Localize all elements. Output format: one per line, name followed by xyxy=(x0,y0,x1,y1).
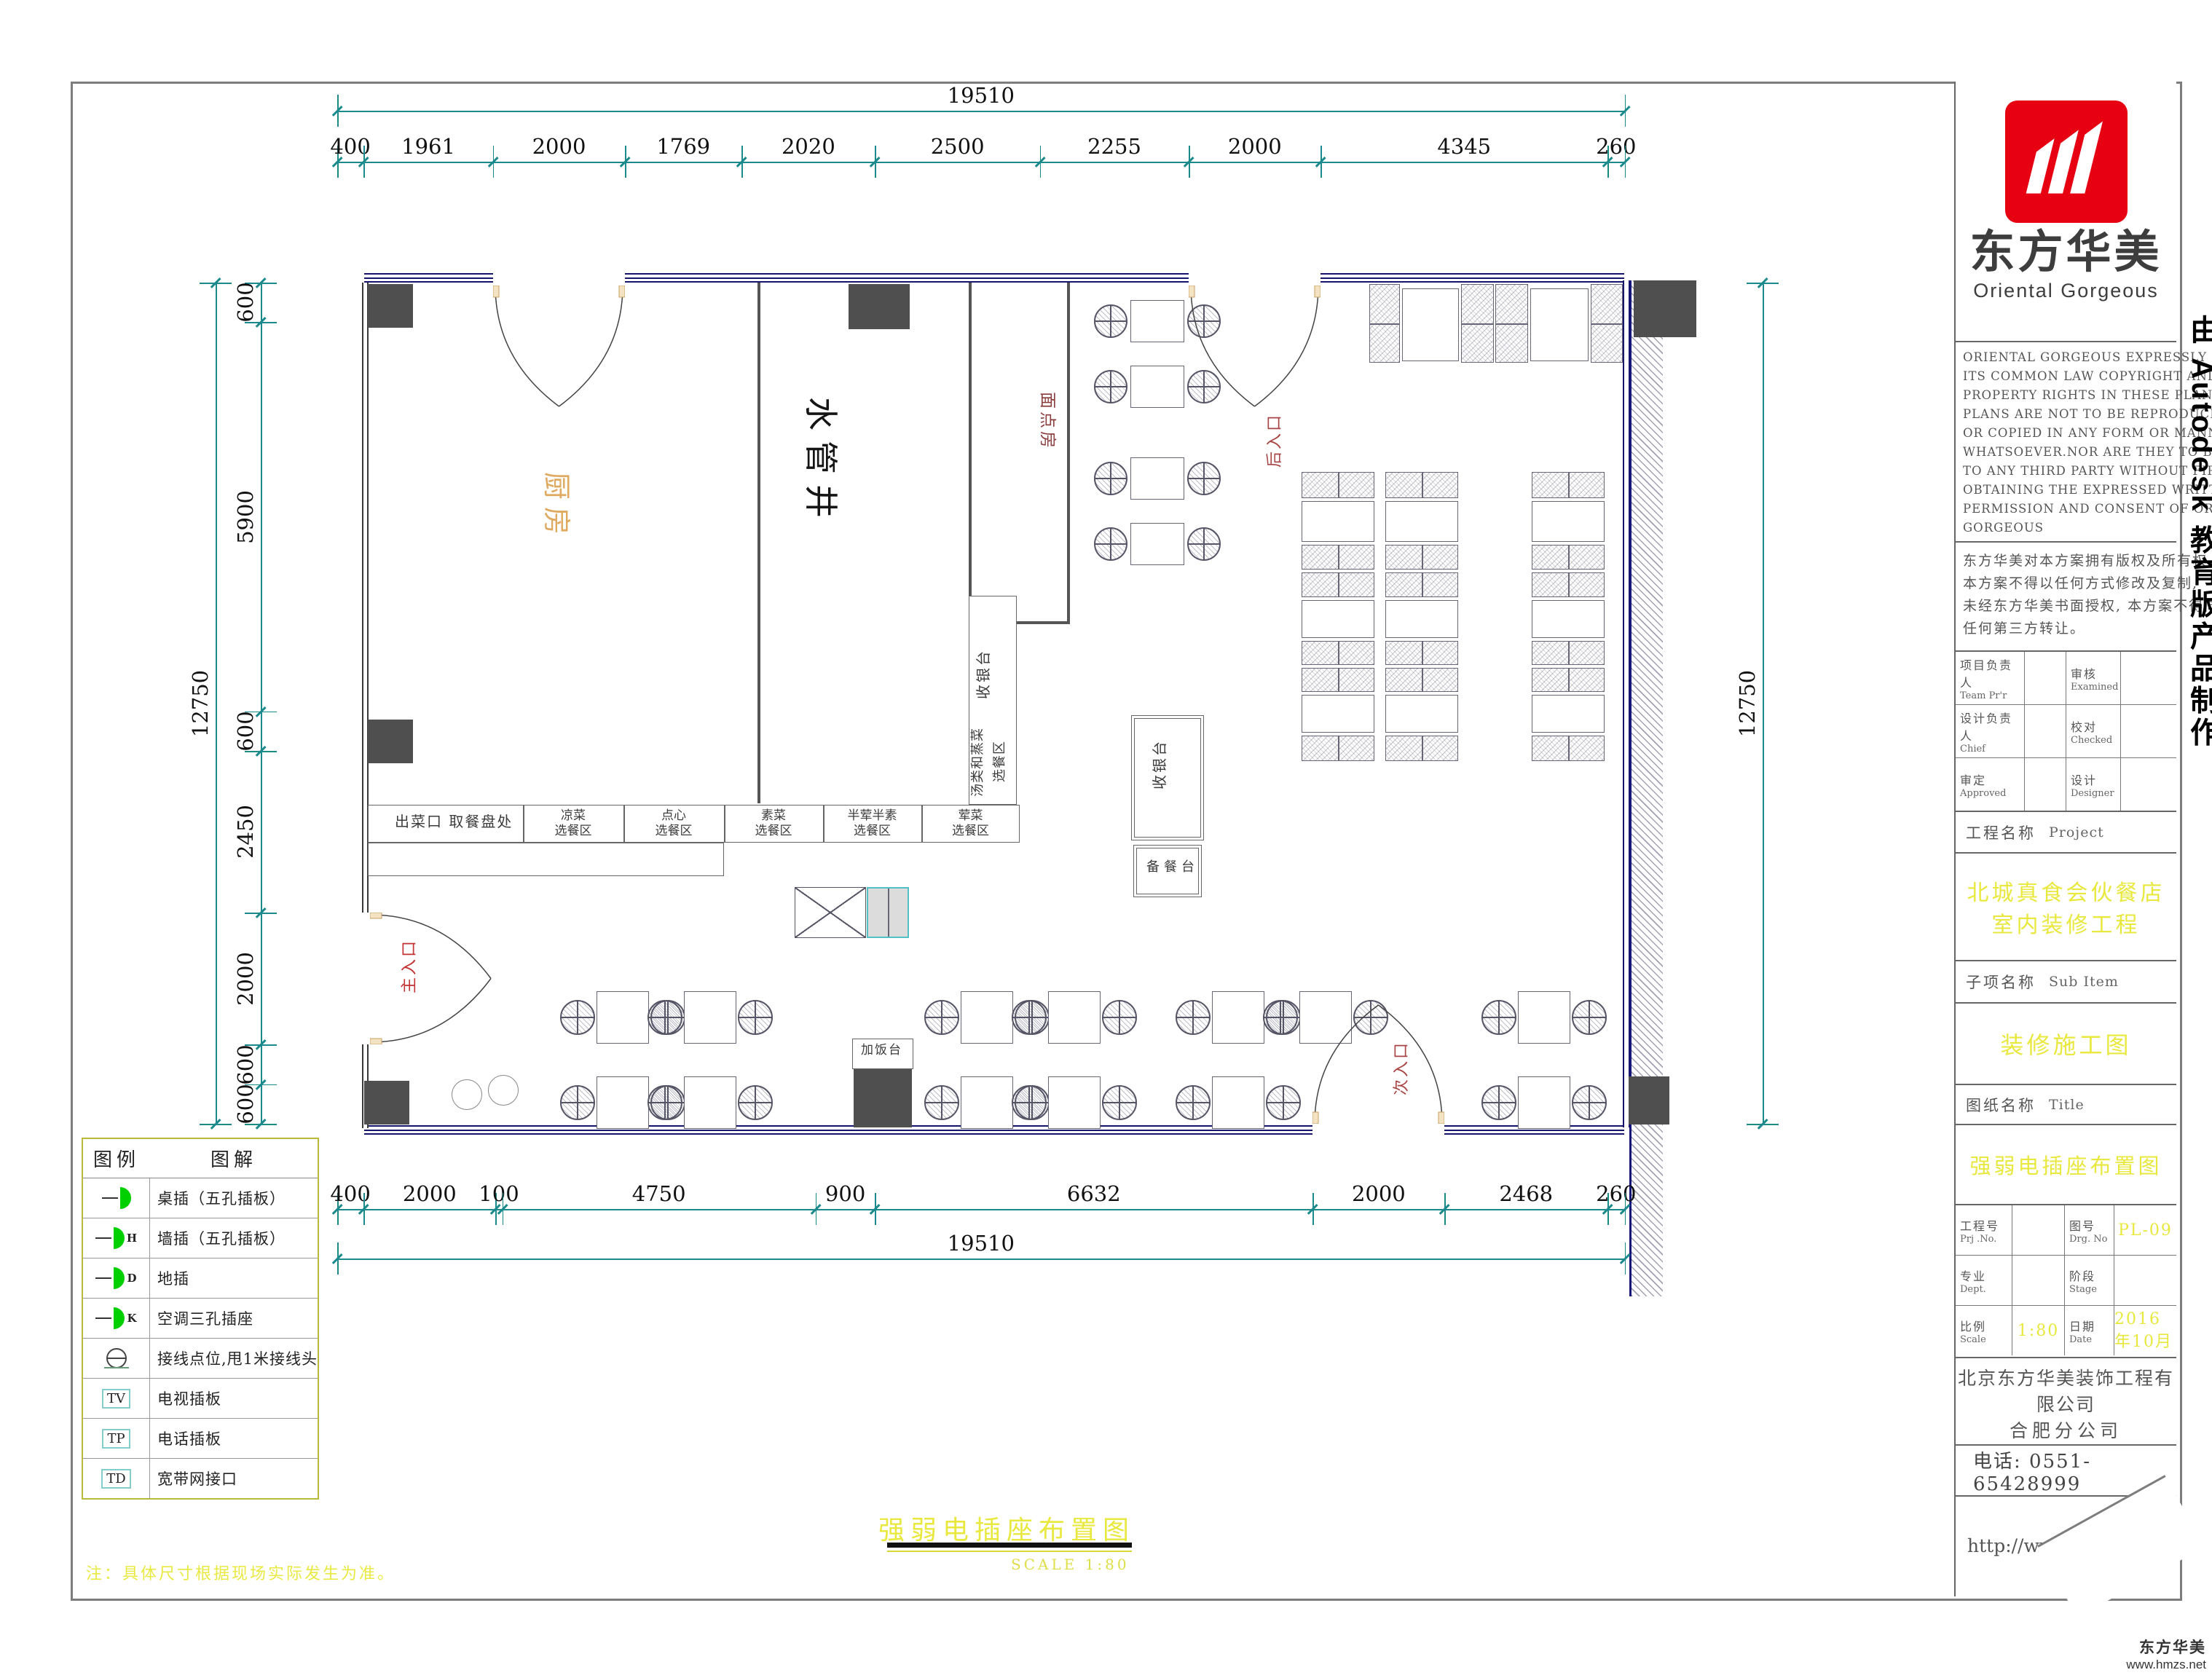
booth-table xyxy=(1402,288,1459,361)
bench-divider xyxy=(1422,473,1423,497)
zone-line2: 选餐区 xyxy=(854,824,891,839)
dim-label: 2500 xyxy=(931,134,985,159)
copyright-line: OBTAINING THE EXPRESSED WRITTEN xyxy=(1963,481,2176,500)
field-value: 2016年10月 xyxy=(2114,1306,2176,1355)
booth-table xyxy=(1532,600,1605,638)
dim-witness xyxy=(1312,1193,1314,1225)
structural-column xyxy=(849,284,910,329)
dim-label: 2255 xyxy=(1087,134,1141,159)
field-label-cn: 工程号 xyxy=(1960,1216,2012,1234)
dim-label-total: 19510 xyxy=(948,83,1015,108)
room-label: 加饭台 xyxy=(861,1044,902,1057)
dim-label: 600 xyxy=(233,1084,258,1124)
socket-icon xyxy=(83,1178,150,1218)
subitem-label-cn: 子项名称 xyxy=(1966,971,2036,993)
dining-table xyxy=(1048,1076,1101,1129)
exterior-wall-top xyxy=(1320,273,1624,283)
dining-table xyxy=(961,1076,1013,1129)
plain-chair xyxy=(488,1075,519,1106)
bench-divider xyxy=(1422,573,1423,596)
field-label-en: Examined xyxy=(2071,682,2120,693)
outlet-box-icon: TD xyxy=(83,1459,150,1498)
bench-divider xyxy=(1462,323,1493,325)
plain-chair xyxy=(452,1079,482,1110)
dim-witness xyxy=(1625,95,1626,127)
dim-witness xyxy=(1320,146,1322,178)
field-label-cn: 审定 xyxy=(1960,771,2024,788)
room-label: 主入口 xyxy=(402,939,418,993)
cabinet-divider xyxy=(888,889,889,937)
dining-table xyxy=(1130,366,1184,408)
sheet-label-row: 图纸名称 Title xyxy=(1956,1085,2176,1125)
dim-line-total xyxy=(337,1258,1625,1260)
booth-table xyxy=(1385,600,1458,638)
room-label: 汤类和蒸菜 xyxy=(972,728,985,797)
field-label-cn: 阶段 xyxy=(2069,1267,2114,1284)
serving-zone-label: 凉菜选餐区 xyxy=(523,805,623,842)
legend-row: TP电话插板 xyxy=(83,1419,318,1459)
legend-label: 电话插板 xyxy=(150,1427,318,1449)
autodesk-edu-note: 由 Autodesk 教育版产品制作 xyxy=(2181,315,2212,749)
dim-witness xyxy=(363,146,365,178)
bench-divider xyxy=(1568,669,1570,691)
room-label: 收银台 xyxy=(976,649,991,699)
booth-bench xyxy=(1532,736,1605,761)
dim-label: 6632 xyxy=(1067,1181,1121,1206)
meta-row: 比例Scale1:80日期Date2016年10月 xyxy=(1956,1306,2176,1355)
zone-line1: 点心 xyxy=(661,808,686,824)
dining-chair xyxy=(648,1000,682,1035)
dim-label: 2000 xyxy=(233,952,258,1006)
dining-chair xyxy=(738,1085,773,1120)
dim-line xyxy=(337,1209,1625,1210)
legend-label: 桌插（五孔插板） xyxy=(150,1187,318,1209)
field-label-en: Scale xyxy=(1960,1334,2012,1345)
zone-line2: 选餐区 xyxy=(952,824,989,839)
booth-bench xyxy=(1302,545,1374,570)
dim-witness xyxy=(503,1193,504,1225)
dining-chair xyxy=(1263,1000,1298,1035)
serving-counter-lower xyxy=(368,843,724,876)
watermark-chinese: 东方华美 xyxy=(2126,1636,2206,1658)
field-label-en: Stage xyxy=(2069,1284,2114,1295)
dim-line xyxy=(261,283,262,1124)
field-label: 设计负责人Chief xyxy=(1956,705,2025,757)
field-value xyxy=(2114,1256,2176,1305)
dining-table xyxy=(1048,991,1101,1044)
field-label: 校对Checked xyxy=(2066,705,2121,757)
dining-chair xyxy=(1481,1085,1516,1120)
field-label: 阶段Stage xyxy=(2065,1256,2114,1305)
booth-table xyxy=(1302,600,1374,638)
booth-table xyxy=(1302,501,1374,542)
dim-witness xyxy=(816,1193,817,1225)
sheet-name: 强弱电插座布置图 xyxy=(1956,1125,2176,1205)
booth-bench xyxy=(1385,545,1458,570)
dim-line-total xyxy=(337,111,1625,112)
socket-lead-icon xyxy=(95,1317,111,1319)
footnote: 注：具体尺寸根据现场实际发生为准。 xyxy=(86,1561,395,1584)
booth-bench xyxy=(1302,641,1374,665)
socket-icon: H xyxy=(83,1218,150,1258)
booth-table xyxy=(1532,501,1605,542)
copyright-line: ITS COMMON LAW COPYRIGHT AND OTHER xyxy=(1963,367,2176,386)
dim-label: 600 xyxy=(233,1044,258,1084)
legend-row: 接线点位,甩1米接线头 xyxy=(83,1339,318,1379)
dim-label-total: 12750 xyxy=(188,669,213,736)
interior-wall xyxy=(757,283,760,803)
copyright-cn-line: 本方案不得以任何方式修改及复制, xyxy=(1963,572,2176,595)
dim-label-total: 12750 xyxy=(1735,669,1760,736)
equipment-xbox xyxy=(795,887,866,938)
copyright-line: OR COPIED IN ANY FORM OR MANNER xyxy=(1963,424,2176,443)
room-label: 备餐台 xyxy=(1146,861,1199,874)
dim-label: 2000 xyxy=(403,1181,457,1206)
legend-table: 图例 图解 桌插（五孔插板）H墙插（五孔插板）D地插K空调三孔插座接线点位,甩1… xyxy=(82,1138,319,1500)
dining-chair xyxy=(1102,1085,1137,1120)
equipment-cabinet xyxy=(867,887,909,938)
bench-divider xyxy=(1338,669,1339,691)
field-value xyxy=(2121,652,2176,704)
exterior-wall-bottom xyxy=(364,1125,1312,1135)
bench-divider xyxy=(1496,323,1527,325)
dining-chair xyxy=(648,1085,682,1120)
dim-line xyxy=(337,162,1625,163)
dining-chair xyxy=(1012,1000,1047,1035)
dim-label: 600 xyxy=(233,282,258,322)
zone-line2: 选餐区 xyxy=(555,824,592,839)
dining-table xyxy=(1130,300,1184,342)
legend-label: 墙插（五孔插板） xyxy=(150,1227,318,1249)
booth-bench xyxy=(1495,284,1528,363)
field-value xyxy=(2025,705,2066,757)
legend-rows: 桌插（五孔插板）H墙插（五孔插板）D地插K空调三孔插座接线点位,甩1米接线头TV… xyxy=(83,1178,318,1498)
dim-witness xyxy=(1625,146,1626,178)
outlet-box-label: TP xyxy=(102,1429,130,1449)
dim-label: 1769 xyxy=(656,134,710,159)
wall-hatch-strip xyxy=(1629,280,1663,1296)
dim-line-total xyxy=(216,283,217,1124)
booth-bench xyxy=(1302,736,1374,761)
dining-table xyxy=(684,1076,736,1129)
dim-label: 2450 xyxy=(233,805,258,859)
bench-divider xyxy=(1338,573,1339,596)
socket-lead-icon xyxy=(95,1237,111,1239)
project-name-line: 室内装修工程 xyxy=(1992,907,2141,939)
dining-chair xyxy=(1176,1085,1211,1120)
subitem-name: 装修施工图 xyxy=(1956,1004,2176,1085)
dining-chair xyxy=(738,1000,773,1035)
dining-chair xyxy=(1012,1085,1047,1120)
socket-body-icon xyxy=(114,1227,125,1249)
dim-label: 1961 xyxy=(401,134,455,159)
dining-chair xyxy=(1572,1085,1607,1120)
bench-divider xyxy=(1591,323,1622,325)
dim-witness xyxy=(875,146,876,178)
copyright-cn-line: 未经东方华美书面授权, 本方案不得向 xyxy=(1963,595,2176,618)
serving-zone-label: 素菜选餐区 xyxy=(724,805,823,842)
field-label-cn: 专业 xyxy=(1960,1267,2012,1284)
dim-witness xyxy=(1625,1242,1626,1275)
field-label-en: Designer xyxy=(2071,788,2120,799)
serving-zone-label: 点心选餐区 xyxy=(623,805,724,842)
field-label-cn: 设计 xyxy=(2071,771,2120,788)
field-value xyxy=(2025,652,2066,704)
dining-table xyxy=(1518,991,1570,1044)
copyright-cn-line: 东方华美对本方案拥有版权及所有权。 xyxy=(1963,550,2176,572)
field-value xyxy=(2025,758,2066,811)
copyright-chinese: 东方华美对本方案拥有版权及所有权。本方案不得以任何方式修改及复制,未经东方华美书… xyxy=(1956,543,2176,652)
field-label: 设计Designer xyxy=(2066,758,2121,811)
field-label-cn: 审核 xyxy=(2071,664,2120,682)
zone-line1: 荤菜 xyxy=(959,808,983,824)
booth-table xyxy=(1530,288,1589,361)
dim-witness xyxy=(625,146,626,178)
project-label-row: 工程名称 Project xyxy=(1956,812,2176,854)
structural-column xyxy=(368,720,413,763)
approval-row: 项目负责人Team Pr'r审核Examined xyxy=(1956,652,2176,705)
booth-bench xyxy=(1302,572,1374,597)
meta-row: 工程号Prj .No.图号Drg. NoPL-09 xyxy=(1956,1205,2176,1256)
copyright-line: WHATSOEVER.NOR ARE THEY TO BE ASSIGNED xyxy=(1963,443,2176,462)
field-label: 项目负责人Team Pr'r xyxy=(1956,652,2025,704)
legend-header-symbol: 图例 xyxy=(83,1139,150,1178)
structural-column xyxy=(1629,1076,1669,1124)
sheet-label-cn: 图纸名称 xyxy=(1966,1094,2036,1116)
company-logo-icon xyxy=(2005,101,2128,223)
project-name: 北城真食会伙餐店室内装修工程 xyxy=(1956,854,2176,961)
field-label-en: Chief xyxy=(1960,744,2024,755)
socket-body-icon xyxy=(120,1187,131,1209)
zone-line2: 选餐区 xyxy=(755,824,792,839)
booth-bench xyxy=(1532,668,1605,692)
bench-divider xyxy=(1370,323,1399,325)
exterior-wall-top xyxy=(364,273,493,283)
room-label: 后入口 xyxy=(1267,413,1283,468)
booth-bench xyxy=(1385,641,1458,665)
meta-fields: 工程号Prj .No.图号Drg. NoPL-09专业Dept.阶段Stage比… xyxy=(1956,1205,2176,1358)
socket-letter: K xyxy=(127,1312,136,1325)
structural-column xyxy=(1634,280,1696,337)
approval-row: 审定Approved设计Designer xyxy=(1956,758,2176,811)
booth-bench xyxy=(1461,284,1494,363)
copyright-line: GORGEOUS xyxy=(1963,519,2176,537)
dim-witness xyxy=(200,1124,232,1125)
field-label-cn: 日期 xyxy=(2069,1317,2114,1334)
bench-divider xyxy=(1338,473,1339,497)
dim-label: 2000 xyxy=(1228,134,1282,159)
socket-letter: H xyxy=(127,1232,137,1245)
outlet-box-label: TV xyxy=(102,1389,130,1409)
field-label-en: Checked xyxy=(2071,735,2120,746)
dim-witness xyxy=(1747,283,1779,284)
dim-witness xyxy=(245,913,277,914)
booth-bench xyxy=(1385,472,1458,498)
booth-bench xyxy=(1302,668,1374,692)
dining-table xyxy=(597,991,649,1044)
watermark: 东方华美 www.hmzs.net xyxy=(2126,1636,2206,1672)
exterior-wall-top xyxy=(625,273,1189,283)
dim-witness xyxy=(245,751,277,752)
field-value xyxy=(2121,705,2176,757)
sheet-title: 强弱电插座布置图 xyxy=(878,1509,1135,1547)
dim-witness xyxy=(1189,146,1190,178)
sheet-title-underline xyxy=(887,1543,1132,1548)
field-label-en: Date xyxy=(2069,1334,2114,1345)
dim-label: 2000 xyxy=(1352,1181,1406,1206)
door-swing xyxy=(1189,285,1320,408)
booth-table xyxy=(1385,501,1458,542)
field-label-en: Dept. xyxy=(1960,1284,2012,1295)
meta-row: 专业Dept.阶段Stage xyxy=(1956,1256,2176,1306)
bench-divider xyxy=(1568,473,1570,497)
room-label: 选餐区 xyxy=(993,741,1007,782)
room-label: 出菜口 取餐盘处 xyxy=(395,814,513,829)
bench-divider xyxy=(1422,736,1423,760)
copyright-line: TO ANY THIRD PARTY WITHOUT FIRST xyxy=(1963,462,2176,481)
legend-row: 桌插（五孔插板） xyxy=(83,1178,318,1218)
project-label-en: Project xyxy=(2049,824,2104,840)
dim-witness xyxy=(1444,1193,1446,1225)
outlet-box-icon: TP xyxy=(83,1419,150,1458)
drawing-sheet: 凉菜选餐区点心选餐区素菜选餐区半荤半素选餐区荤菜选餐区厨房水管井面点房后入口主入… xyxy=(0,0,2212,1678)
dim-label: 5900 xyxy=(233,490,258,544)
booth-table xyxy=(1532,695,1605,733)
zone-line1: 半荤半素 xyxy=(848,808,897,824)
room-label: 收银台 xyxy=(1152,739,1167,789)
dim-witness xyxy=(741,146,743,178)
bench-divider xyxy=(1422,545,1423,569)
structural-column xyxy=(854,1069,912,1127)
dim-witness xyxy=(245,1124,277,1125)
dim-witness xyxy=(1040,146,1042,178)
dim-label: 2468 xyxy=(1499,1181,1553,1206)
junction-base-icon xyxy=(104,1367,129,1368)
field-value xyxy=(2012,1256,2065,1305)
copyright-cn-line: 任何第三方转让。 xyxy=(1963,618,2176,640)
booth-bench xyxy=(1302,472,1374,498)
dining-chair xyxy=(560,1000,595,1035)
field-label-cn: 图号 xyxy=(2069,1216,2114,1234)
legend-label: 地插 xyxy=(150,1267,318,1289)
outlet-box-icon: TV xyxy=(83,1379,150,1418)
dim-witness xyxy=(337,1242,339,1275)
serving-zone-label: 荤菜选餐区 xyxy=(921,805,1020,842)
dim-witness xyxy=(363,1193,365,1225)
socket-body-icon xyxy=(114,1307,125,1329)
field-label-en: Drg. No xyxy=(2069,1234,2114,1245)
copyright-line: PLANS ARE NOT TO BE REPRODUCED CHANGED xyxy=(1963,405,2176,424)
dim-witness xyxy=(493,146,495,178)
approval-row: 设计负责人Chief校对Checked xyxy=(1956,705,2176,758)
field-label: 审定Approved xyxy=(1956,758,2025,811)
interior-wall xyxy=(1067,283,1070,623)
dining-table xyxy=(1130,523,1184,565)
logo-section: 东方华美 Oriental Gorgeous xyxy=(1956,82,2176,342)
dim-line-total xyxy=(1763,283,1764,1124)
room-label: 水管井 xyxy=(804,397,838,528)
legend-label: 接线点位,甩1米接线头 xyxy=(150,1347,318,1369)
booth-bench xyxy=(1532,572,1605,597)
copyright-line: PERMISSION AND CONSENT OF ORIENTAL xyxy=(1963,500,2176,519)
dining-chair xyxy=(1094,462,1127,495)
dining-table xyxy=(597,1076,649,1129)
bench-divider xyxy=(1338,545,1339,569)
bench-divider xyxy=(1338,736,1339,760)
sheet-title-underline-2 xyxy=(887,1551,1132,1552)
dining-chair xyxy=(1102,1000,1137,1035)
bench-divider xyxy=(1338,642,1339,664)
copyright-english: ORIENTAL GORGEOUS EXPRESSLY RESERVESITS … xyxy=(1956,342,2176,543)
bench-divider xyxy=(1568,736,1570,760)
socket-letter: D xyxy=(127,1272,136,1285)
room-label: 次入口 xyxy=(1394,1041,1410,1095)
dim-label: 260 xyxy=(1596,134,1636,159)
copyright-line: ORIENTAL GORGEOUS EXPRESSLY RESERVES xyxy=(1963,348,2176,367)
dim-label: 2000 xyxy=(532,134,586,159)
dining-table xyxy=(1130,457,1184,500)
junction-icon xyxy=(104,1348,129,1368)
project-name-line: 北城真食会伙餐店 xyxy=(1967,875,2165,907)
door-swing xyxy=(493,285,625,408)
field-label: 图号Drg. No xyxy=(2065,1205,2114,1255)
field-label: 工程号Prj .No. xyxy=(1956,1205,2012,1255)
logo-english-text: Oriental Gorgeous xyxy=(1956,280,2176,302)
subitem-label-row: 子项名称 Sub Item xyxy=(1956,961,2176,1004)
field-label: 日期Date xyxy=(2065,1306,2114,1355)
booth-bench xyxy=(1385,572,1458,597)
legend-row: TD宽带网接口 xyxy=(83,1459,318,1498)
junction-point-icon xyxy=(83,1339,150,1378)
dining-table xyxy=(1212,1076,1264,1129)
dining-table xyxy=(961,991,1013,1044)
bench-divider xyxy=(1568,573,1570,596)
dim-label: 2020 xyxy=(782,134,835,159)
dining-chair xyxy=(1094,304,1127,338)
legend-header-label: 图解 xyxy=(150,1139,318,1178)
field-label-cn: 设计负责人 xyxy=(1960,709,2024,744)
dim-witness xyxy=(875,1193,876,1225)
dining-chair xyxy=(1266,1085,1301,1120)
scale-note: SCALE 1:80 xyxy=(1011,1556,1130,1573)
legend-label: 电视插板 xyxy=(150,1387,318,1409)
legend-row: H墙插（五孔插板） xyxy=(83,1218,318,1258)
logo-chinese-text: 东方华美 xyxy=(1956,230,2176,275)
legend-label: 宽带网接口 xyxy=(150,1468,318,1489)
approval-fields: 项目负责人Team Pr'r审核Examined设计负责人Chief校对Chec… xyxy=(1956,652,2176,812)
legend-label: 空调三孔插座 xyxy=(150,1307,318,1329)
field-label-en: Approved xyxy=(1960,788,2024,799)
booth-bench xyxy=(1385,736,1458,761)
bench-divider xyxy=(1568,642,1570,664)
dim-label-total: 19510 xyxy=(948,1231,1015,1256)
legend-header: 图例 图解 xyxy=(83,1139,318,1178)
dining-chair xyxy=(924,1000,959,1035)
dim-label: 4345 xyxy=(1437,134,1491,159)
project-label-cn: 工程名称 xyxy=(1966,822,2036,843)
dining-table xyxy=(684,991,736,1044)
field-label: 比例Scale xyxy=(1956,1306,2012,1355)
field-value: 1:80 xyxy=(2012,1306,2065,1355)
field-value xyxy=(2012,1205,2065,1255)
dim-label: 4750 xyxy=(632,1181,686,1206)
booth-bench xyxy=(1591,284,1623,363)
structural-column xyxy=(368,284,413,328)
zone-line1: 素菜 xyxy=(761,808,786,824)
copyright-line: PROPERTY RIGHTS IN THESE PLANS.THESE xyxy=(1963,386,2176,405)
field-label-en: Team Pr'r xyxy=(1960,690,2024,701)
socket-icon: K xyxy=(83,1299,150,1338)
